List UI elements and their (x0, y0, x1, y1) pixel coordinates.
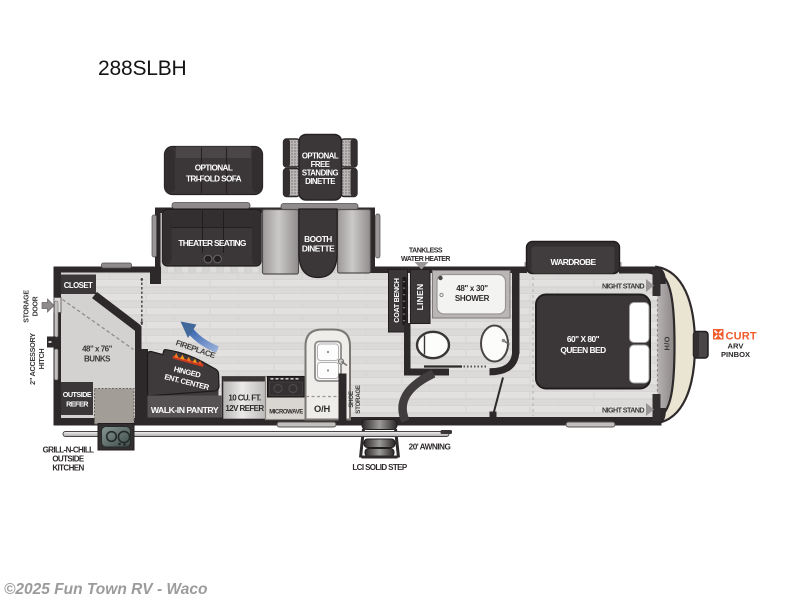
svg-text:BUNKS: BUNKS (84, 355, 111, 364)
svg-text:2" ACCESSORY: 2" ACCESSORY (28, 333, 37, 385)
svg-text:©2025 Fun Town RV - Waco: ©2025 Fun Town RV - Waco (4, 581, 207, 598)
svg-text:TRI-FOLD SOFA: TRI-FOLD SOFA (186, 175, 242, 184)
svg-text:THEATER SEATING: THEATER SEATING (178, 238, 246, 248)
svg-text:LCI SOLID STEP: LCI SOLID STEP (352, 463, 408, 472)
svg-text:NIGHT STAND: NIGHT STAND (602, 282, 644, 291)
svg-text:SHOWER: SHOWER (455, 294, 490, 303)
svg-text:STORAGE: STORAGE (24, 290, 31, 323)
svg-text:TANKLESS: TANKLESS (409, 248, 443, 255)
svg-text:H/O: H/O (663, 336, 672, 350)
svg-text:QUEEN BED: QUEEN BED (560, 345, 606, 355)
svg-text:CLOSET: CLOSET (64, 281, 93, 290)
svg-text:48" x 30": 48" x 30" (456, 284, 488, 293)
svg-text:DINETTE: DINETTE (305, 177, 335, 186)
svg-text:20' AWNING: 20' AWNING (409, 443, 451, 452)
svg-text:STORAGE: STORAGE (355, 385, 362, 414)
svg-text:OPTIONAL: OPTIONAL (195, 164, 233, 173)
svg-text:BOOTH: BOOTH (304, 234, 332, 244)
svg-text:288SLBH: 288SLBH (98, 57, 187, 80)
svg-text:SHOE: SHOE (348, 391, 355, 408)
svg-text:OUTSIDE: OUTSIDE (63, 390, 92, 399)
svg-text:KITCHEN: KITCHEN (52, 464, 84, 473)
svg-text:OUTSIDE: OUTSIDE (52, 455, 85, 464)
svg-text:12V REFER: 12V REFER (225, 404, 264, 413)
svg-text:48" x 76": 48" x 76" (82, 345, 112, 354)
svg-text:PINBOX: PINBOX (721, 350, 750, 359)
svg-text:LINEN: LINEN (415, 284, 425, 311)
svg-text:O/H: O/H (314, 404, 330, 414)
svg-text:60" X 80": 60" X 80" (567, 334, 600, 344)
svg-text:HITCH: HITCH (37, 349, 46, 370)
svg-text:NIGHT STAND: NIGHT STAND (602, 406, 644, 415)
svg-text:DOOR: DOOR (33, 296, 40, 316)
svg-text:MICROWAVE: MICROWAVE (269, 410, 303, 416)
svg-text:DINETTE: DINETTE (302, 244, 335, 254)
svg-text:10 CU. FT.: 10 CU. FT. (228, 394, 261, 403)
svg-text:REFER: REFER (66, 400, 89, 409)
svg-text:WALK-IN PANTRY: WALK-IN PANTRY (151, 405, 219, 415)
svg-text:GRILL-N-CHILL: GRILL-N-CHILL (43, 446, 95, 455)
svg-text:COAT BENCH: COAT BENCH (392, 278, 401, 322)
svg-text:WARDROBE: WARDROBE (551, 257, 597, 267)
svg-text:WATER HEATER: WATER HEATER (401, 256, 450, 263)
